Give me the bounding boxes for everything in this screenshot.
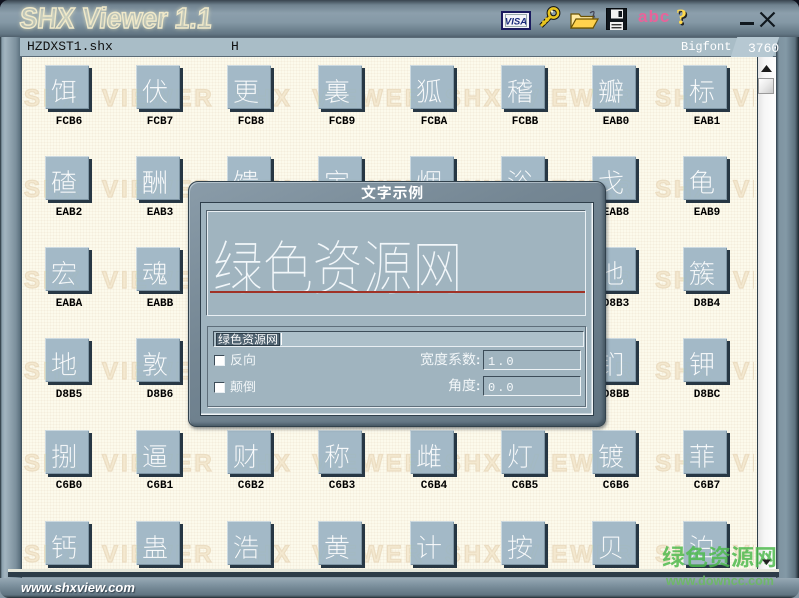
svg-text:VISA: VISA [505, 17, 527, 28]
